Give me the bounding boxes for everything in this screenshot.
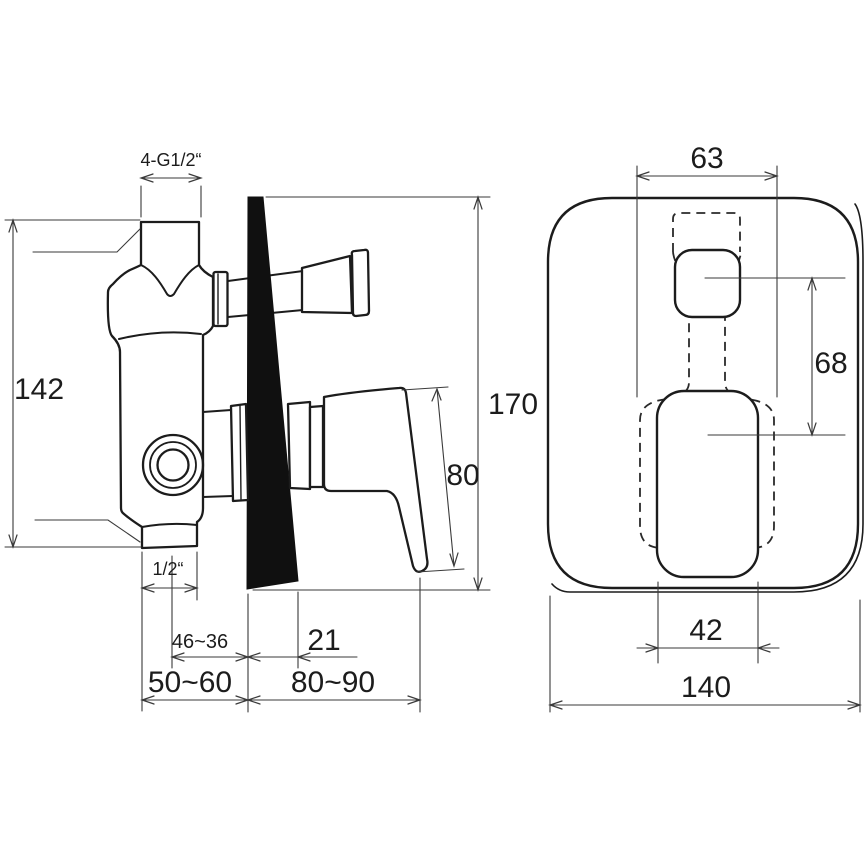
dim-wall-offset: 21 xyxy=(248,624,357,661)
dim-label-half-inch: 1/2“ xyxy=(152,559,183,579)
dim-mounting-depth: 46~36 xyxy=(172,631,248,661)
stem-flange xyxy=(214,272,228,326)
dim-label-thread: 4-G1/2“ xyxy=(140,150,201,170)
dim-bottom-outlet: 1/2“ xyxy=(142,559,197,592)
dim-install-depth: 50~60 80~90 xyxy=(142,666,420,704)
dim-label-68: 68 xyxy=(814,347,847,380)
cartridge-flange xyxy=(203,404,248,501)
lever-handle xyxy=(324,388,427,572)
mixer-valve-drawing: 4-G1/2“ 142 170 80 xyxy=(0,0,868,868)
dim-label-21: 21 xyxy=(307,624,340,657)
side-view xyxy=(108,197,428,589)
dim-label-80-90: 80~90 xyxy=(291,666,375,699)
front-view xyxy=(548,198,863,592)
dim-label-170: 170 xyxy=(488,388,538,421)
dim-label-42: 42 xyxy=(689,614,722,647)
mixer-handle-front xyxy=(657,391,758,577)
handle-collar-outer xyxy=(288,402,310,489)
dim-label-140: 140 xyxy=(681,671,731,704)
handle-collar-inner xyxy=(310,406,323,487)
diverter-knob-front xyxy=(675,250,740,317)
diverter-knob xyxy=(302,256,352,313)
handle-assembly xyxy=(288,388,427,572)
dim-label-142: 142 xyxy=(14,373,64,406)
dim-handle-width: 42 xyxy=(637,582,779,663)
dim-label-63: 63 xyxy=(690,142,723,175)
dim-thread-connections: 4-G1/2“ xyxy=(140,150,201,217)
wall-section xyxy=(247,197,298,589)
diverter-end-cap xyxy=(352,250,369,316)
technical-drawing-page: 4-G1/2“ 142 170 80 xyxy=(0,0,868,868)
dim-label-46-36: 46~36 xyxy=(172,631,228,653)
dim-label-80: 80 xyxy=(446,459,479,492)
dim-label-50-60: 50~60 xyxy=(148,666,232,699)
valve-body-outline xyxy=(108,222,213,548)
